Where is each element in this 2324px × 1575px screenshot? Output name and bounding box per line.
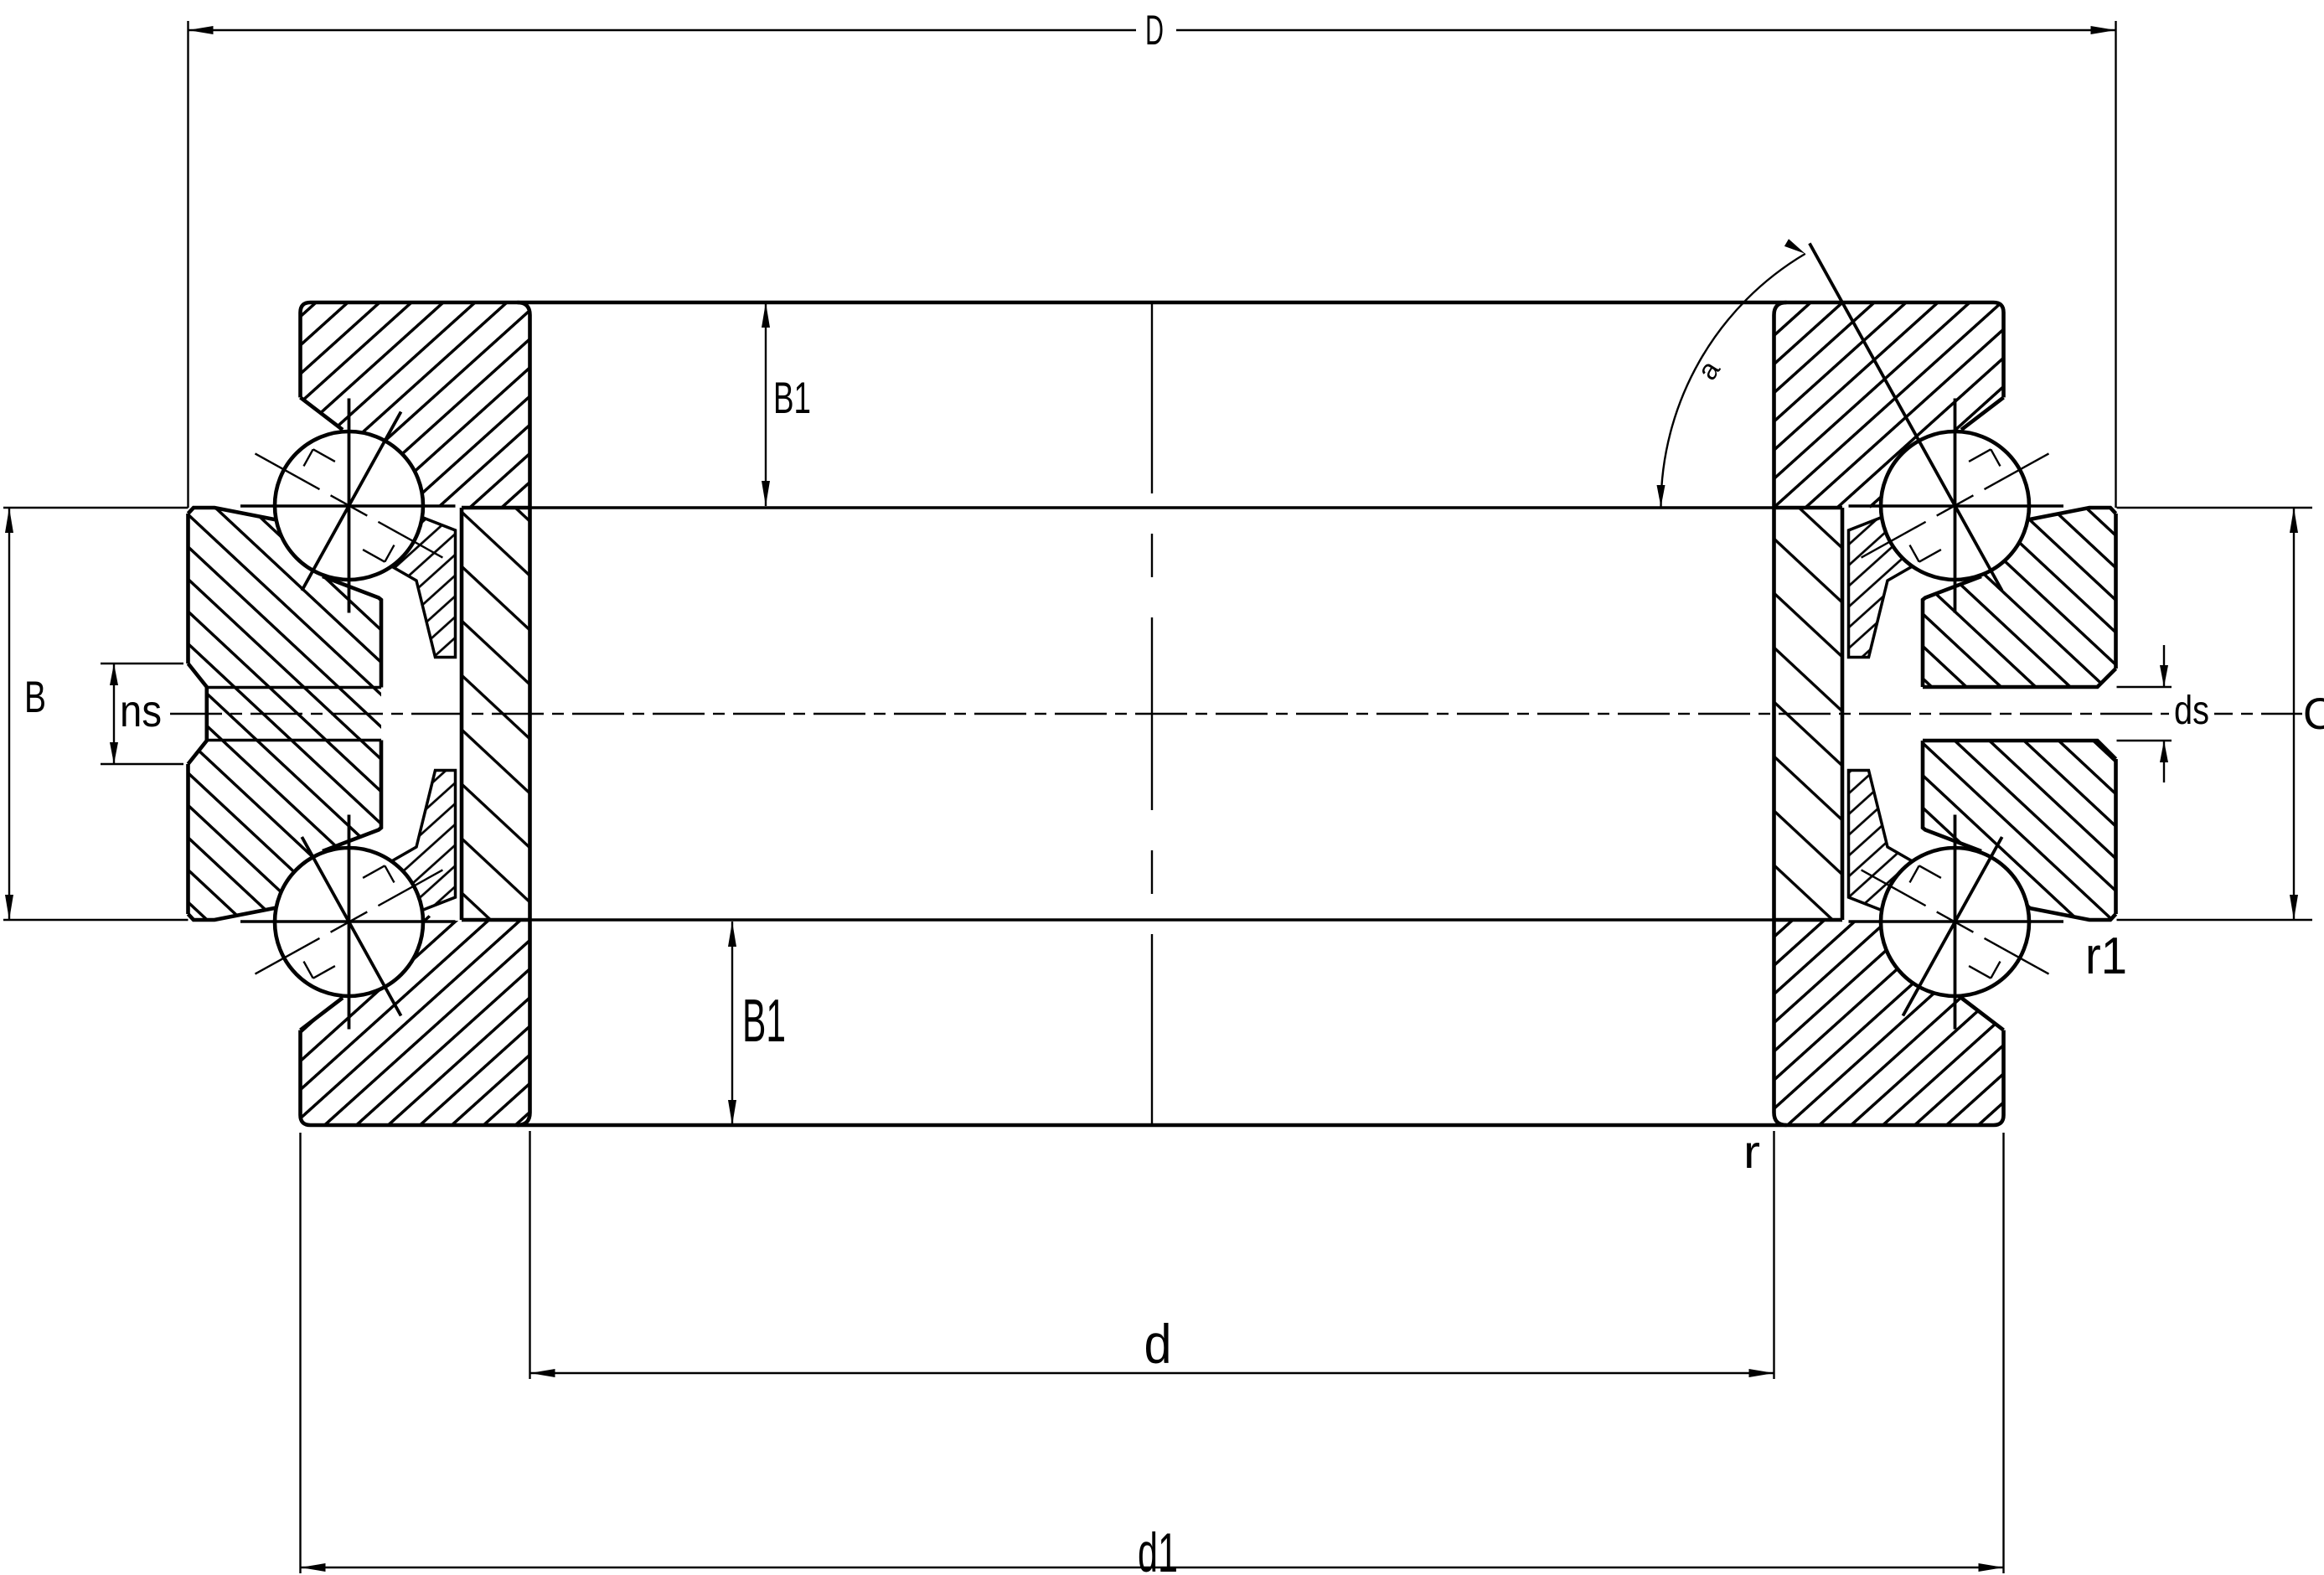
svg-text:r: r	[1743, 1125, 1760, 1178]
svg-text:D: D	[1145, 7, 1164, 54]
svg-text:d1: d1	[1138, 1521, 1178, 1575]
svg-text:B: B	[24, 673, 46, 722]
svg-text:d: d	[1144, 1313, 1172, 1375]
svg-text:ds: ds	[2174, 689, 2209, 733]
svg-text:r1: r1	[2085, 927, 2127, 985]
svg-text:B1: B1	[773, 374, 811, 423]
svg-text:ns: ns	[120, 686, 162, 736]
svg-text:C: C	[2303, 689, 2324, 739]
svg-text:B1: B1	[742, 988, 786, 1055]
